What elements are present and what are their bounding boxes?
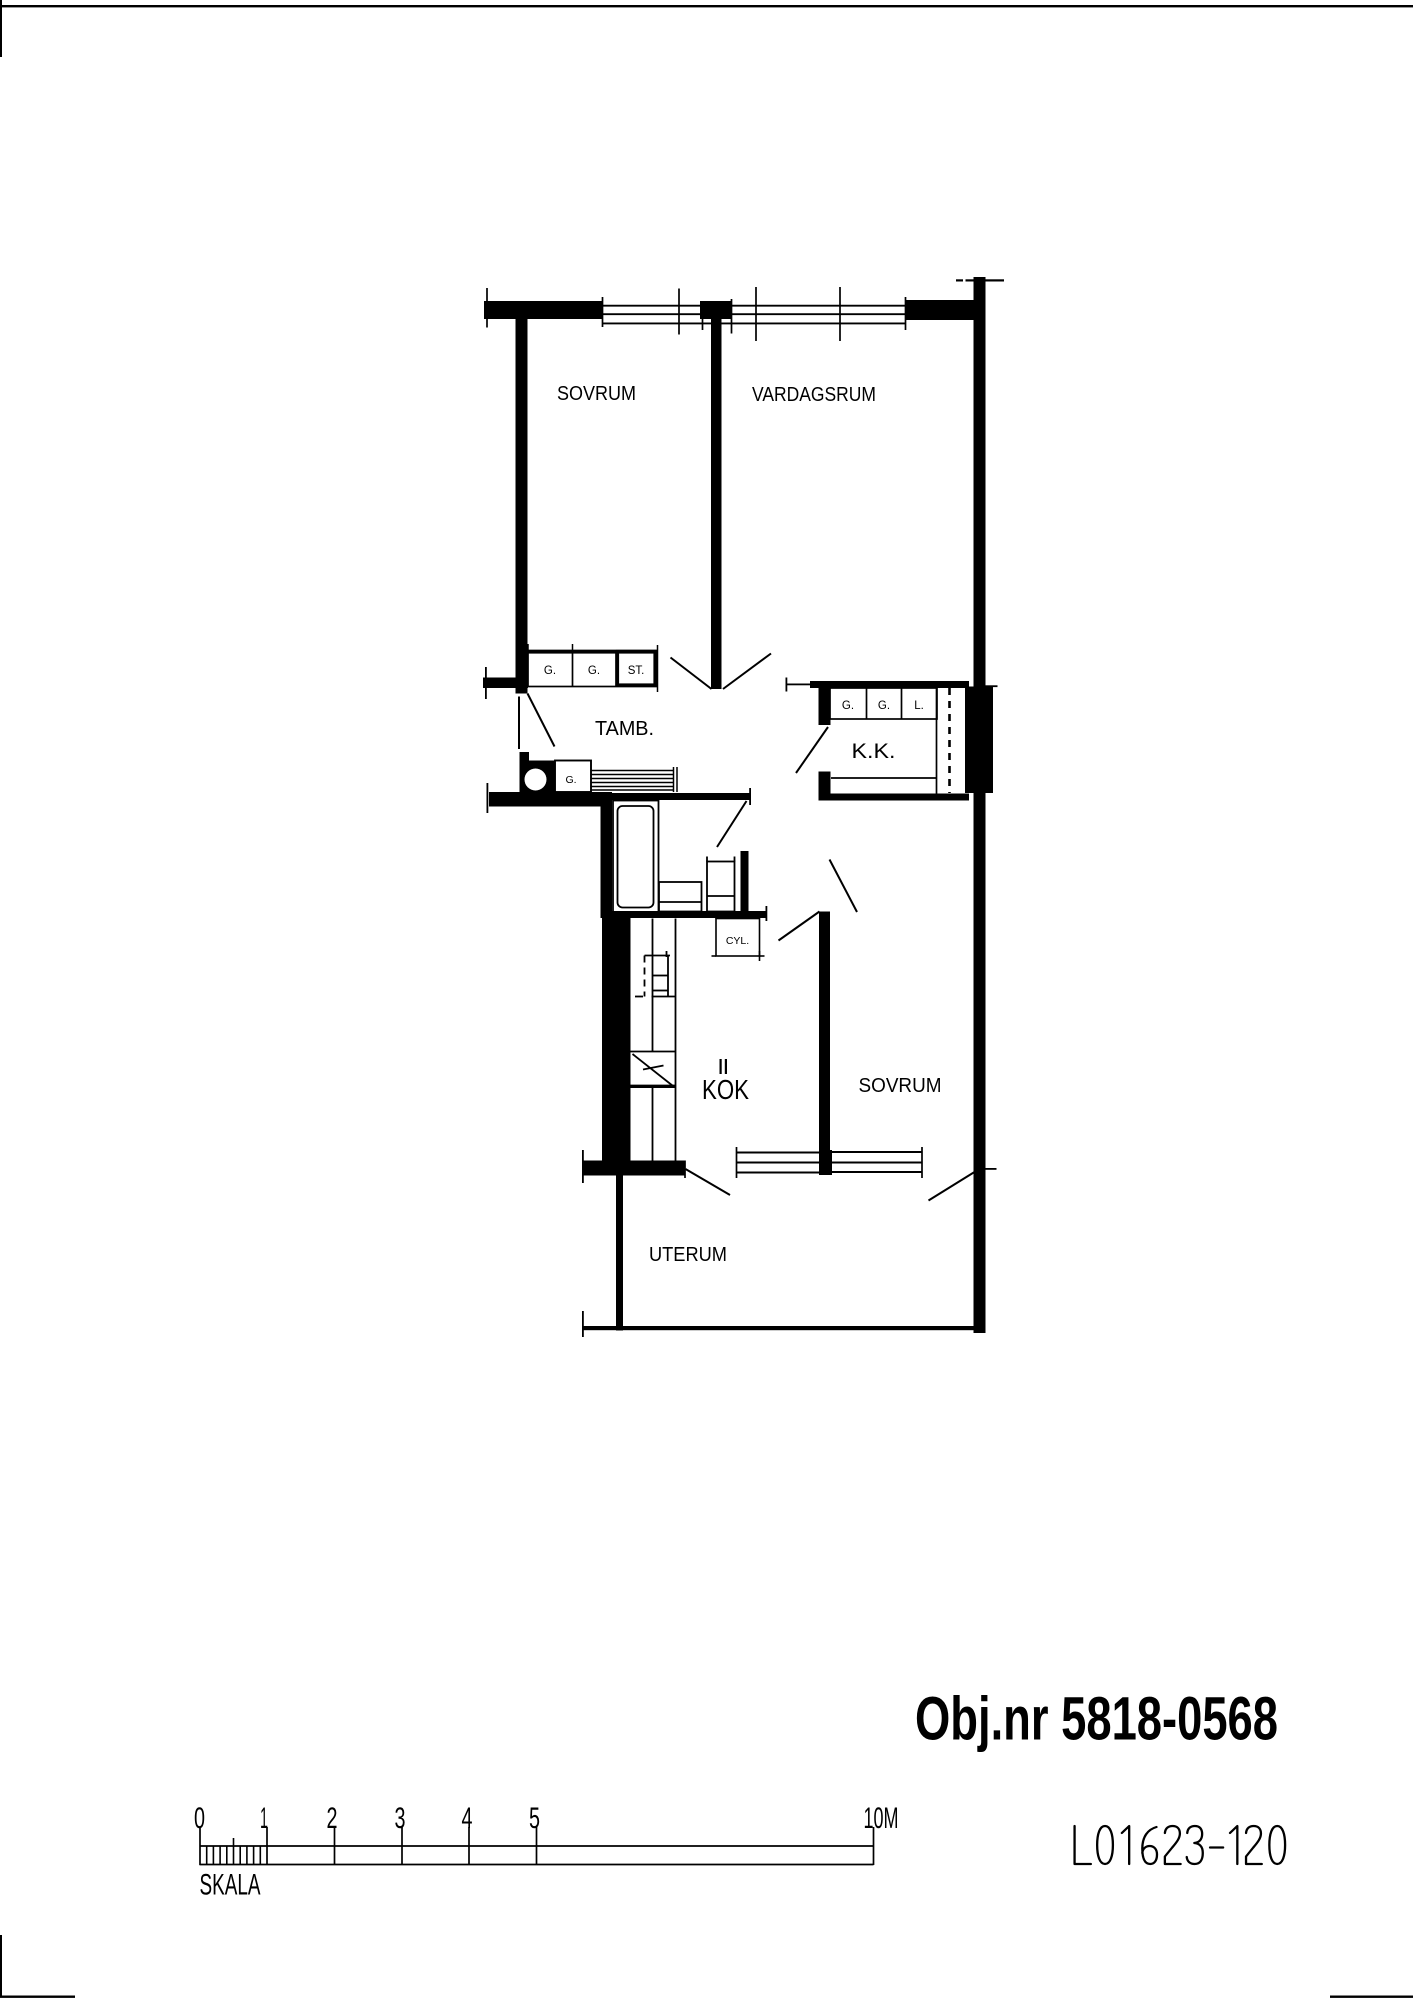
svg-text:ST.: ST. [628, 665, 645, 677]
svg-text:L.: L. [914, 700, 924, 712]
svg-text:G.: G. [588, 665, 600, 677]
svg-text:SOVRUM: SOVRUM [557, 383, 636, 405]
svg-text:Obj.nr 5818-0568: Obj.nr 5818-0568 [915, 1685, 1278, 1753]
svg-text:SKALA: SKALA [200, 1869, 261, 1902]
svg-text:K.K.: K.K. [852, 739, 896, 763]
svg-text:G.: G. [878, 700, 890, 712]
svg-text:VARDAGSRUM: VARDAGSRUM [752, 384, 876, 406]
svg-text:TAMB.: TAMB. [595, 718, 654, 740]
svg-text:UTERUM: UTERUM [649, 1244, 727, 1266]
svg-text:SOVRUM: SOVRUM [859, 1075, 942, 1097]
svg-text:G.: G. [544, 665, 556, 677]
svg-text:CYL.: CYL. [726, 935, 749, 947]
svg-text:4: 4 [462, 1802, 473, 1835]
svg-text:3: 3 [395, 1802, 406, 1835]
svg-text:G.: G. [565, 774, 576, 786]
svg-text:5: 5 [529, 1802, 540, 1835]
svg-text:2: 2 [327, 1802, 338, 1835]
svg-text:0: 0 [194, 1802, 205, 1835]
svg-text:G.: G. [842, 700, 854, 712]
svg-text:KOK: KOK [702, 1074, 749, 1105]
svg-text:1: 1 [260, 1802, 268, 1835]
svg-text:10M: 10M [864, 1802, 899, 1835]
